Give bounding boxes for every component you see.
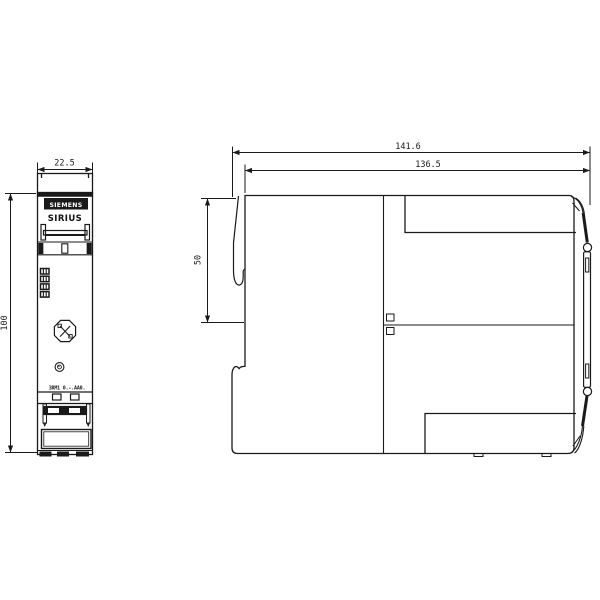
lever-slot-top	[586, 258, 589, 272]
side-view: 141.6 136.5 50	[194, 142, 592, 457]
lever-pivot-top	[583, 243, 591, 251]
dim-front-height: 100	[0, 194, 38, 453]
label-plate	[42, 430, 92, 449]
front-view: 22.5 100 SIEMENS	[0, 159, 93, 457]
top-terminal-recess	[405, 196, 576, 233]
bottom-feet	[38, 451, 93, 457]
din-rail-clip	[234, 196, 246, 285]
dim-arrow-down	[8, 446, 13, 453]
connector-band	[38, 242, 93, 255]
dim-side-body-width-label: 136.5	[415, 160, 441, 170]
lever-pivot-bottom	[583, 387, 591, 395]
dim-front-height-label: 100	[0, 315, 10, 330]
brand-logo: SIEMENS	[45, 199, 88, 210]
led-row	[41, 269, 50, 275]
brand-logo-label: SIEMENS	[49, 202, 82, 209]
dim-arrow-right	[86, 167, 93, 172]
mounting-bracket	[41, 225, 90, 241]
led-row	[41, 292, 50, 298]
dim-side-body-width: 136.5	[245, 160, 590, 193]
rotary-knob-icon	[54, 320, 75, 341]
lever-slot-bottom	[586, 364, 589, 378]
bottom-terminal-section	[38, 392, 93, 427]
part-number-label: 3RM1 0.-.AA0.	[49, 386, 86, 392]
dim-front-width-label: 22.5	[54, 159, 74, 169]
internal-division-lines	[384, 196, 574, 453]
bottom-terminal-recess	[425, 414, 576, 454]
led-indicators	[41, 269, 50, 298]
dim-side-upper-height-label: 50	[194, 255, 204, 265]
led-row	[41, 276, 50, 282]
top-terminal-block	[38, 174, 93, 194]
technical-drawing: 22.5 100 SIEMENS	[0, 0, 600, 600]
screw-icon	[55, 363, 64, 372]
detail-squares	[387, 314, 395, 335]
dim-arrow-up	[8, 194, 13, 201]
dim-arrow-left	[38, 167, 45, 172]
drawing-svg: 22.5 100 SIEMENS	[0, 0, 600, 600]
dim-front-width: 22.5	[38, 159, 93, 175]
led-row	[41, 284, 50, 290]
product-line-label: SIRIUS	[48, 214, 82, 224]
dim-side-overall-width-label: 141.6	[395, 142, 421, 152]
